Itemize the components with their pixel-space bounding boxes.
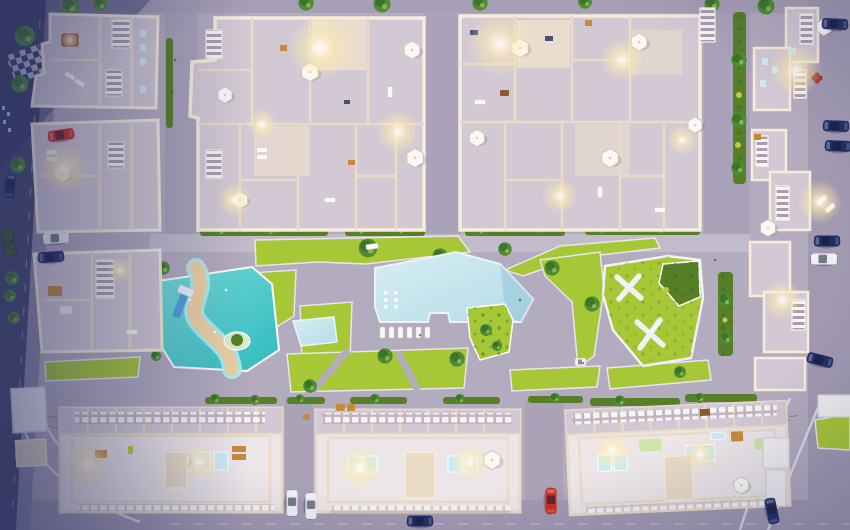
aerial-render-stage: Aerial dusk view of a residential comple…: [0, 0, 850, 530]
masterplan-svg: Aerial dusk view of a residential comple…: [0, 0, 850, 530]
vignette-overlay: [0, 0, 850, 530]
